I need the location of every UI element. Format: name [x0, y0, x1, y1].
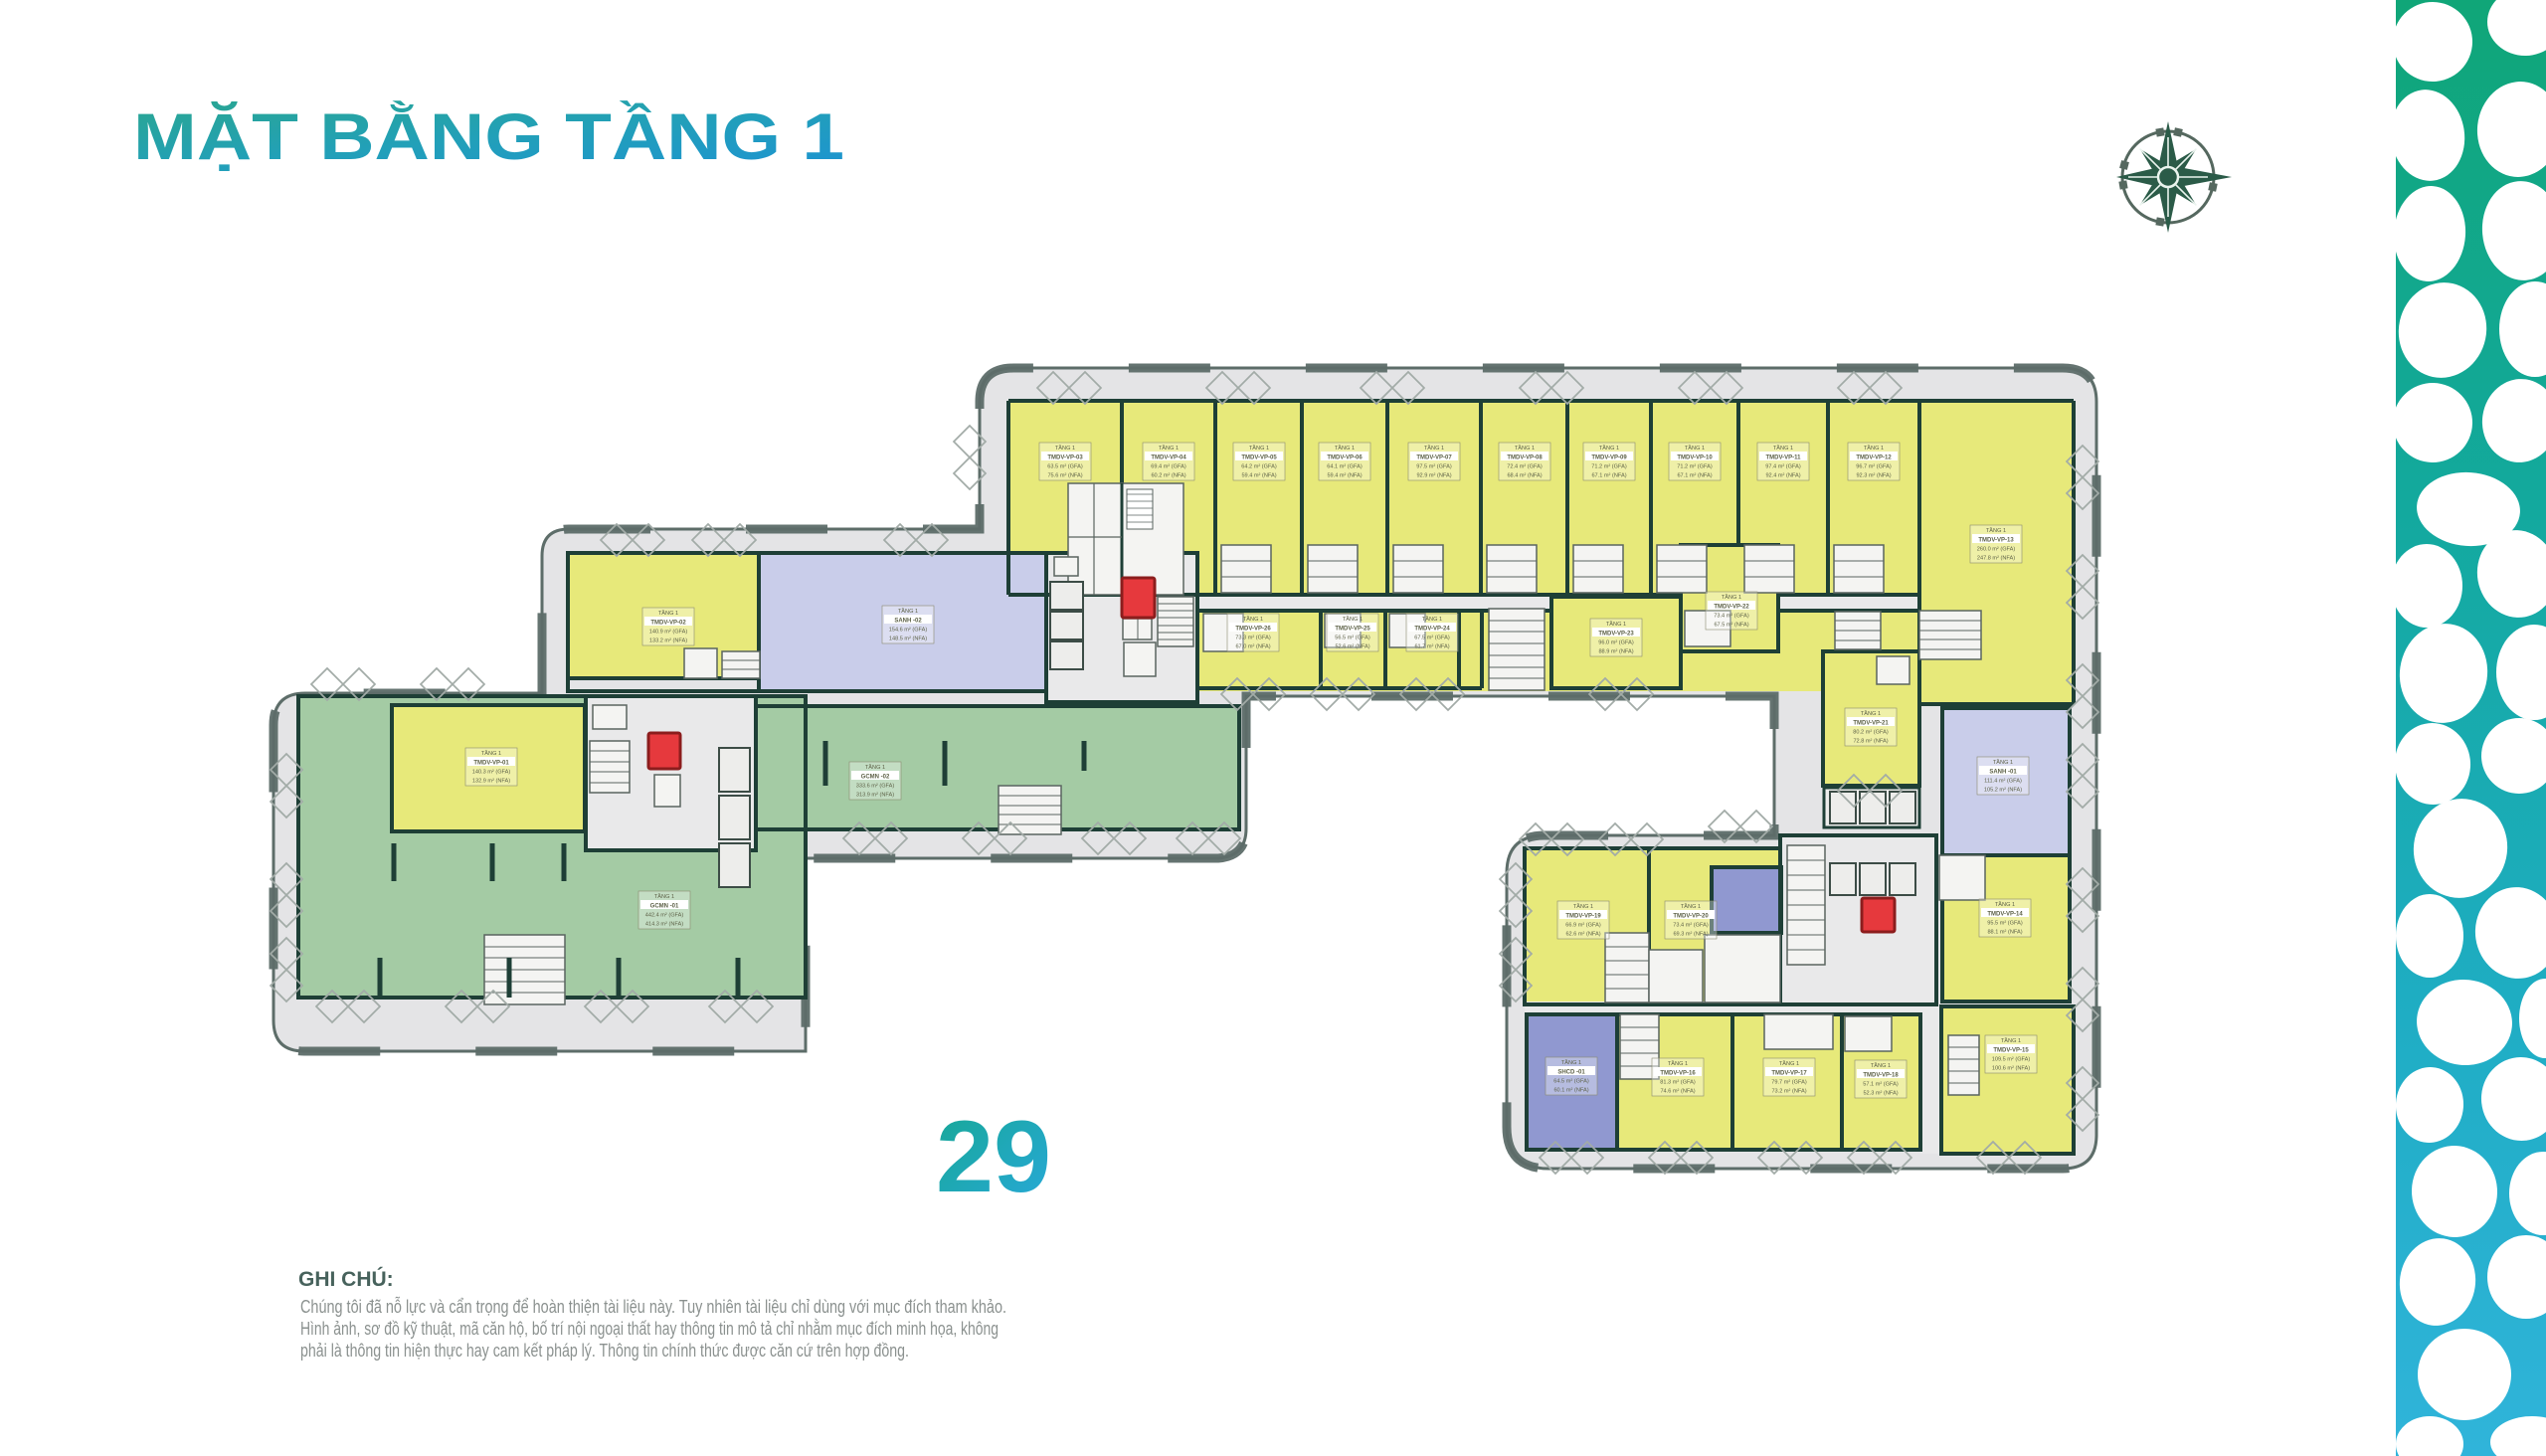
svg-text:64.2 m² (GFA): 64.2 m² (GFA): [1241, 464, 1277, 470]
svg-text:95.5 m² (GFA): 95.5 m² (GFA): [1987, 921, 2023, 927]
svg-text:97.5 m² (GFA): 97.5 m² (GFA): [1416, 464, 1452, 470]
svg-text:60.2 m² (NFA): 60.2 m² (NFA): [1151, 473, 1185, 479]
svg-text:60.1 m² (NFA): 60.1 m² (NFA): [1553, 1088, 1588, 1094]
svg-text:247.8 m² (NFA): 247.8 m² (NFA): [1977, 556, 2015, 562]
svg-text:96.0 m² (GFA): 96.0 m² (GFA): [1598, 640, 1634, 646]
svg-text:62.6 m² (NFA): 62.6 m² (NFA): [1565, 932, 1600, 938]
svg-text:67.1 m² (NFA): 67.1 m² (NFA): [1677, 473, 1712, 479]
svg-text:TMDV-VP-10: TMDV-VP-10: [1677, 455, 1713, 461]
svg-text:80.2 m² (GFA): 80.2 m² (GFA): [1853, 730, 1889, 736]
svg-text:GCMN -02: GCMN -02: [861, 775, 890, 781]
svg-text:Chúng tôi đã nỗ lực và cẩn trọ: Chúng tôi đã nỗ lực và cẩn trọng để hoàn…: [300, 1296, 1006, 1317]
svg-text:phải là thông tin hiện thực ha: phải là thông tin hiện thực hay cam kết …: [300, 1340, 909, 1361]
svg-text:59.4 m² (NFA): 59.4 m² (NFA): [1241, 473, 1276, 479]
svg-text:133.2 m² (NFA): 133.2 m² (NFA): [649, 638, 687, 644]
svg-text:TẦNG 1: TẦNG 1: [1861, 710, 1881, 717]
svg-text:67.5 m² (GFA): 67.5 m² (GFA): [1414, 636, 1450, 641]
svg-text:154.6 m² (GFA): 154.6 m² (GFA): [889, 628, 928, 634]
svg-text:73.2 m² (NFA): 73.2 m² (NFA): [1771, 1089, 1806, 1095]
svg-text:313.9 m² (NFA): 313.9 m² (NFA): [856, 793, 894, 799]
svg-text:69.4 m² (GFA): 69.4 m² (GFA): [1151, 464, 1186, 470]
svg-text:TẦNG 1: TẦNG 1: [865, 764, 885, 771]
svg-text:TMDV-VP-14: TMDV-VP-14: [1987, 912, 2023, 918]
svg-text:TMDV-VP-22: TMDV-VP-22: [1714, 605, 1749, 611]
svg-text:TMDV-VP-02: TMDV-VP-02: [650, 621, 686, 627]
svg-text:67.0 m² (NFA): 67.0 m² (NFA): [1235, 644, 1270, 650]
svg-text:TMDV-VP-06: TMDV-VP-06: [1327, 455, 1363, 461]
svg-text:TMDV-VP-03: TMDV-VP-03: [1047, 455, 1083, 461]
svg-text:68.4 m² (NFA): 68.4 m² (NFA): [1507, 473, 1542, 479]
svg-text:67.5 m² (NFA): 67.5 m² (NFA): [1714, 623, 1748, 629]
svg-text:140.9 m² (GFA): 140.9 m² (GFA): [649, 630, 688, 636]
svg-text:TMDV-VP-25: TMDV-VP-25: [1335, 627, 1370, 633]
svg-text:TMDV-VP-21: TMDV-VP-21: [1853, 721, 1889, 727]
svg-text:TMDV-VP-17: TMDV-VP-17: [1771, 1071, 1807, 1077]
svg-text:67.1 m² (NFA): 67.1 m² (NFA): [1591, 473, 1626, 479]
svg-text:66.9 m² (GFA): 66.9 m² (GFA): [1565, 923, 1601, 929]
svg-text:TẦNG 1: TẦNG 1: [1606, 621, 1626, 628]
svg-text:Hình ảnh, sơ đồ kỹ thuật, mã c: Hình ảnh, sơ đồ kỹ thuật, mã căn hộ, bố …: [300, 1318, 999, 1339]
svg-text:TẦNG 1: TẦNG 1: [1424, 445, 1444, 452]
svg-text:TẦNG 1: TẦNG 1: [1995, 901, 2015, 908]
svg-text:69.3 m² (NFA): 69.3 m² (NFA): [1673, 932, 1708, 938]
svg-text:88.1 m² (NFA): 88.1 m² (NFA): [1987, 930, 2022, 936]
svg-text:TẦNG 1: TẦNG 1: [654, 893, 674, 900]
svg-text:TMDV-VP-19: TMDV-VP-19: [1565, 914, 1601, 920]
svg-text:29: 29: [936, 1100, 1051, 1213]
svg-text:TẦNG 1: TẦNG 1: [1335, 445, 1355, 452]
svg-text:111.4 m² (GFA): 111.4 m² (GFA): [1984, 779, 2022, 785]
svg-text:74.6 m² (NFA): 74.6 m² (NFA): [1660, 1089, 1695, 1095]
svg-text:73.4 m² (GFA): 73.4 m² (GFA): [1714, 614, 1749, 620]
svg-text:TMDV-VP-08: TMDV-VP-08: [1507, 455, 1543, 461]
svg-text:TẦNG 1: TẦNG 1: [1561, 1059, 1581, 1066]
svg-text:109.5 m² (GFA): 109.5 m² (GFA): [1992, 1057, 2031, 1063]
svg-text:TMDV-VP-15: TMDV-VP-15: [1993, 1048, 2029, 1054]
svg-text:73.3 m² (GFA): 73.3 m² (GFA): [1235, 636, 1271, 641]
svg-text:TẦNG 1: TẦNG 1: [1055, 445, 1075, 452]
svg-text:TMDV-VP-23: TMDV-VP-23: [1598, 632, 1634, 637]
svg-text:TMDV-VP-13: TMDV-VP-13: [1978, 538, 2014, 544]
svg-text:59.4 m² (NFA): 59.4 m² (NFA): [1327, 473, 1362, 479]
svg-text:56.5 m² (GFA): 56.5 m² (GFA): [1335, 636, 1370, 641]
svg-text:TMDV-VP-26: TMDV-VP-26: [1235, 627, 1271, 633]
svg-text:TMDV-VP-16: TMDV-VP-16: [1660, 1071, 1696, 1077]
svg-text:57.1 m² (GFA): 57.1 m² (GFA): [1863, 1082, 1899, 1088]
svg-text:132.9 m² (NFA): 132.9 m² (NFA): [472, 779, 510, 785]
svg-text:TẦNG 1: TẦNG 1: [1243, 616, 1263, 623]
svg-text:140.3 m² (GFA): 140.3 m² (GFA): [472, 770, 511, 776]
svg-text:63.5 m² (GFA): 63.5 m² (GFA): [1047, 464, 1083, 470]
svg-text:TMDV-VP-24: TMDV-VP-24: [1414, 627, 1450, 633]
svg-text:TẦNG 1: TẦNG 1: [1864, 445, 1884, 452]
svg-text:TMDV-VP-04: TMDV-VP-04: [1151, 455, 1186, 461]
svg-text:TMDV-VP-12: TMDV-VP-12: [1856, 455, 1892, 461]
svg-text:TẦNG 1: TẦNG 1: [1779, 1060, 1799, 1067]
svg-text:71.2 m² (GFA): 71.2 m² (GFA): [1591, 464, 1627, 470]
svg-text:260.0 m² (GFA): 260.0 m² (GFA): [1977, 547, 2016, 553]
svg-text:88.9 m² (NFA): 88.9 m² (NFA): [1598, 649, 1633, 655]
svg-text:72.8 m² (NFA): 72.8 m² (NFA): [1853, 739, 1888, 745]
svg-text:SANH -02: SANH -02: [894, 619, 922, 625]
svg-text:TẦNG 1: TẦNG 1: [1871, 1062, 1891, 1069]
svg-text:GCMN -01: GCMN -01: [650, 904, 679, 910]
svg-text:73.4 m² (GFA): 73.4 m² (GFA): [1673, 923, 1709, 929]
svg-text:TMDV-VP-07: TMDV-VP-07: [1416, 455, 1452, 461]
svg-text:TMDV-VP-09: TMDV-VP-09: [1591, 455, 1627, 461]
svg-text:333.6 m² (GFA): 333.6 m² (GFA): [856, 784, 895, 790]
svg-text:TẦNG 1: TẦNG 1: [1422, 616, 1442, 623]
svg-text:TẦNG 1: TẦNG 1: [658, 610, 678, 617]
svg-text:75.6 m² (NFA): 75.6 m² (NFA): [1047, 473, 1082, 479]
svg-text:100.6 m² (NFA): 100.6 m² (NFA): [1992, 1066, 2030, 1072]
svg-text:TẦNG 1: TẦNG 1: [1599, 445, 1619, 452]
svg-text:71.2 m² (GFA): 71.2 m² (GFA): [1677, 464, 1713, 470]
svg-text:81.3 m² (GFA): 81.3 m² (GFA): [1660, 1080, 1696, 1086]
svg-text:72.4 m² (GFA): 72.4 m² (GFA): [1507, 464, 1543, 470]
svg-text:TẦNG 1: TẦNG 1: [1722, 594, 1741, 601]
svg-text:52.6 m² (NFA): 52.6 m² (NFA): [1335, 644, 1369, 650]
svg-text:TẦNG 1: TẦNG 1: [1773, 445, 1793, 452]
svg-text:105.2 m² (NFA): 105.2 m² (NFA): [1984, 788, 2022, 794]
svg-text:79.7 m² (GFA): 79.7 m² (GFA): [1771, 1080, 1807, 1086]
svg-text:64.1 m² (GFA): 64.1 m² (GFA): [1327, 464, 1363, 470]
svg-text:97.4 m² (GFA): 97.4 m² (GFA): [1765, 464, 1801, 470]
svg-text:TẦNG 1: TẦNG 1: [1159, 445, 1179, 452]
svg-text:92.4 m² (NFA): 92.4 m² (NFA): [1765, 473, 1800, 479]
svg-text:414.3 m² (NFA): 414.3 m² (NFA): [645, 922, 683, 928]
svg-text:TẦNG 1: TẦNG 1: [481, 750, 501, 757]
svg-text:148.5 m² (NFA): 148.5 m² (NFA): [889, 637, 927, 642]
svg-text:442.4 m² (GFA): 442.4 m² (GFA): [645, 913, 684, 919]
svg-text:TẦNG 1: TẦNG 1: [1685, 445, 1705, 452]
svg-text:TẦNG 1: TẦNG 1: [1986, 527, 2006, 534]
svg-text:64.5 m² (GFA): 64.5 m² (GFA): [1553, 1079, 1589, 1085]
svg-text:61.7 m² (NFA): 61.7 m² (NFA): [1414, 644, 1449, 650]
svg-text:TẦNG 1: TẦNG 1: [1573, 903, 1593, 910]
svg-text:TMDV-VP-18: TMDV-VP-18: [1863, 1073, 1899, 1079]
svg-text:TMDV-VP-20: TMDV-VP-20: [1673, 914, 1709, 920]
svg-text:SHCD -01: SHCD -01: [1557, 1070, 1585, 1076]
svg-text:96.7 m² (GFA): 96.7 m² (GFA): [1856, 464, 1892, 470]
svg-text:TẦNG 1: TẦNG 1: [1668, 1060, 1688, 1067]
svg-text:52.3 m² (NFA): 52.3 m² (NFA): [1863, 1091, 1898, 1097]
svg-text:TẦNG 1: TẦNG 1: [1993, 759, 2013, 766]
svg-text:TẦNG 1: TẦNG 1: [2001, 1037, 2021, 1044]
svg-text:TẦNG 1: TẦNG 1: [1249, 445, 1269, 452]
svg-text:TMDV-VP-01: TMDV-VP-01: [473, 761, 509, 767]
svg-text:MẶT BẰNG TẦNG 1: MẶT BẰNG TẦNG 1: [133, 99, 844, 173]
svg-text:TMDV-VP-11: TMDV-VP-11: [1765, 455, 1801, 461]
svg-text:GHI CHÚ:: GHI CHÚ:: [298, 1267, 394, 1291]
svg-text:TẦNG 1: TẦNG 1: [898, 608, 918, 615]
svg-text:92.3 m² (NFA): 92.3 m² (NFA): [1856, 473, 1891, 479]
svg-text:TẦNG 1: TẦNG 1: [1343, 616, 1363, 623]
svg-text:TẦNG 1: TẦNG 1: [1515, 445, 1535, 452]
svg-text:TMDV-VP-05: TMDV-VP-05: [1241, 455, 1277, 461]
svg-text:TẦNG 1: TẦNG 1: [1681, 903, 1701, 910]
svg-text:92.9 m² (NFA): 92.9 m² (NFA): [1416, 473, 1451, 479]
svg-text:SANH -01: SANH -01: [1989, 770, 2017, 776]
